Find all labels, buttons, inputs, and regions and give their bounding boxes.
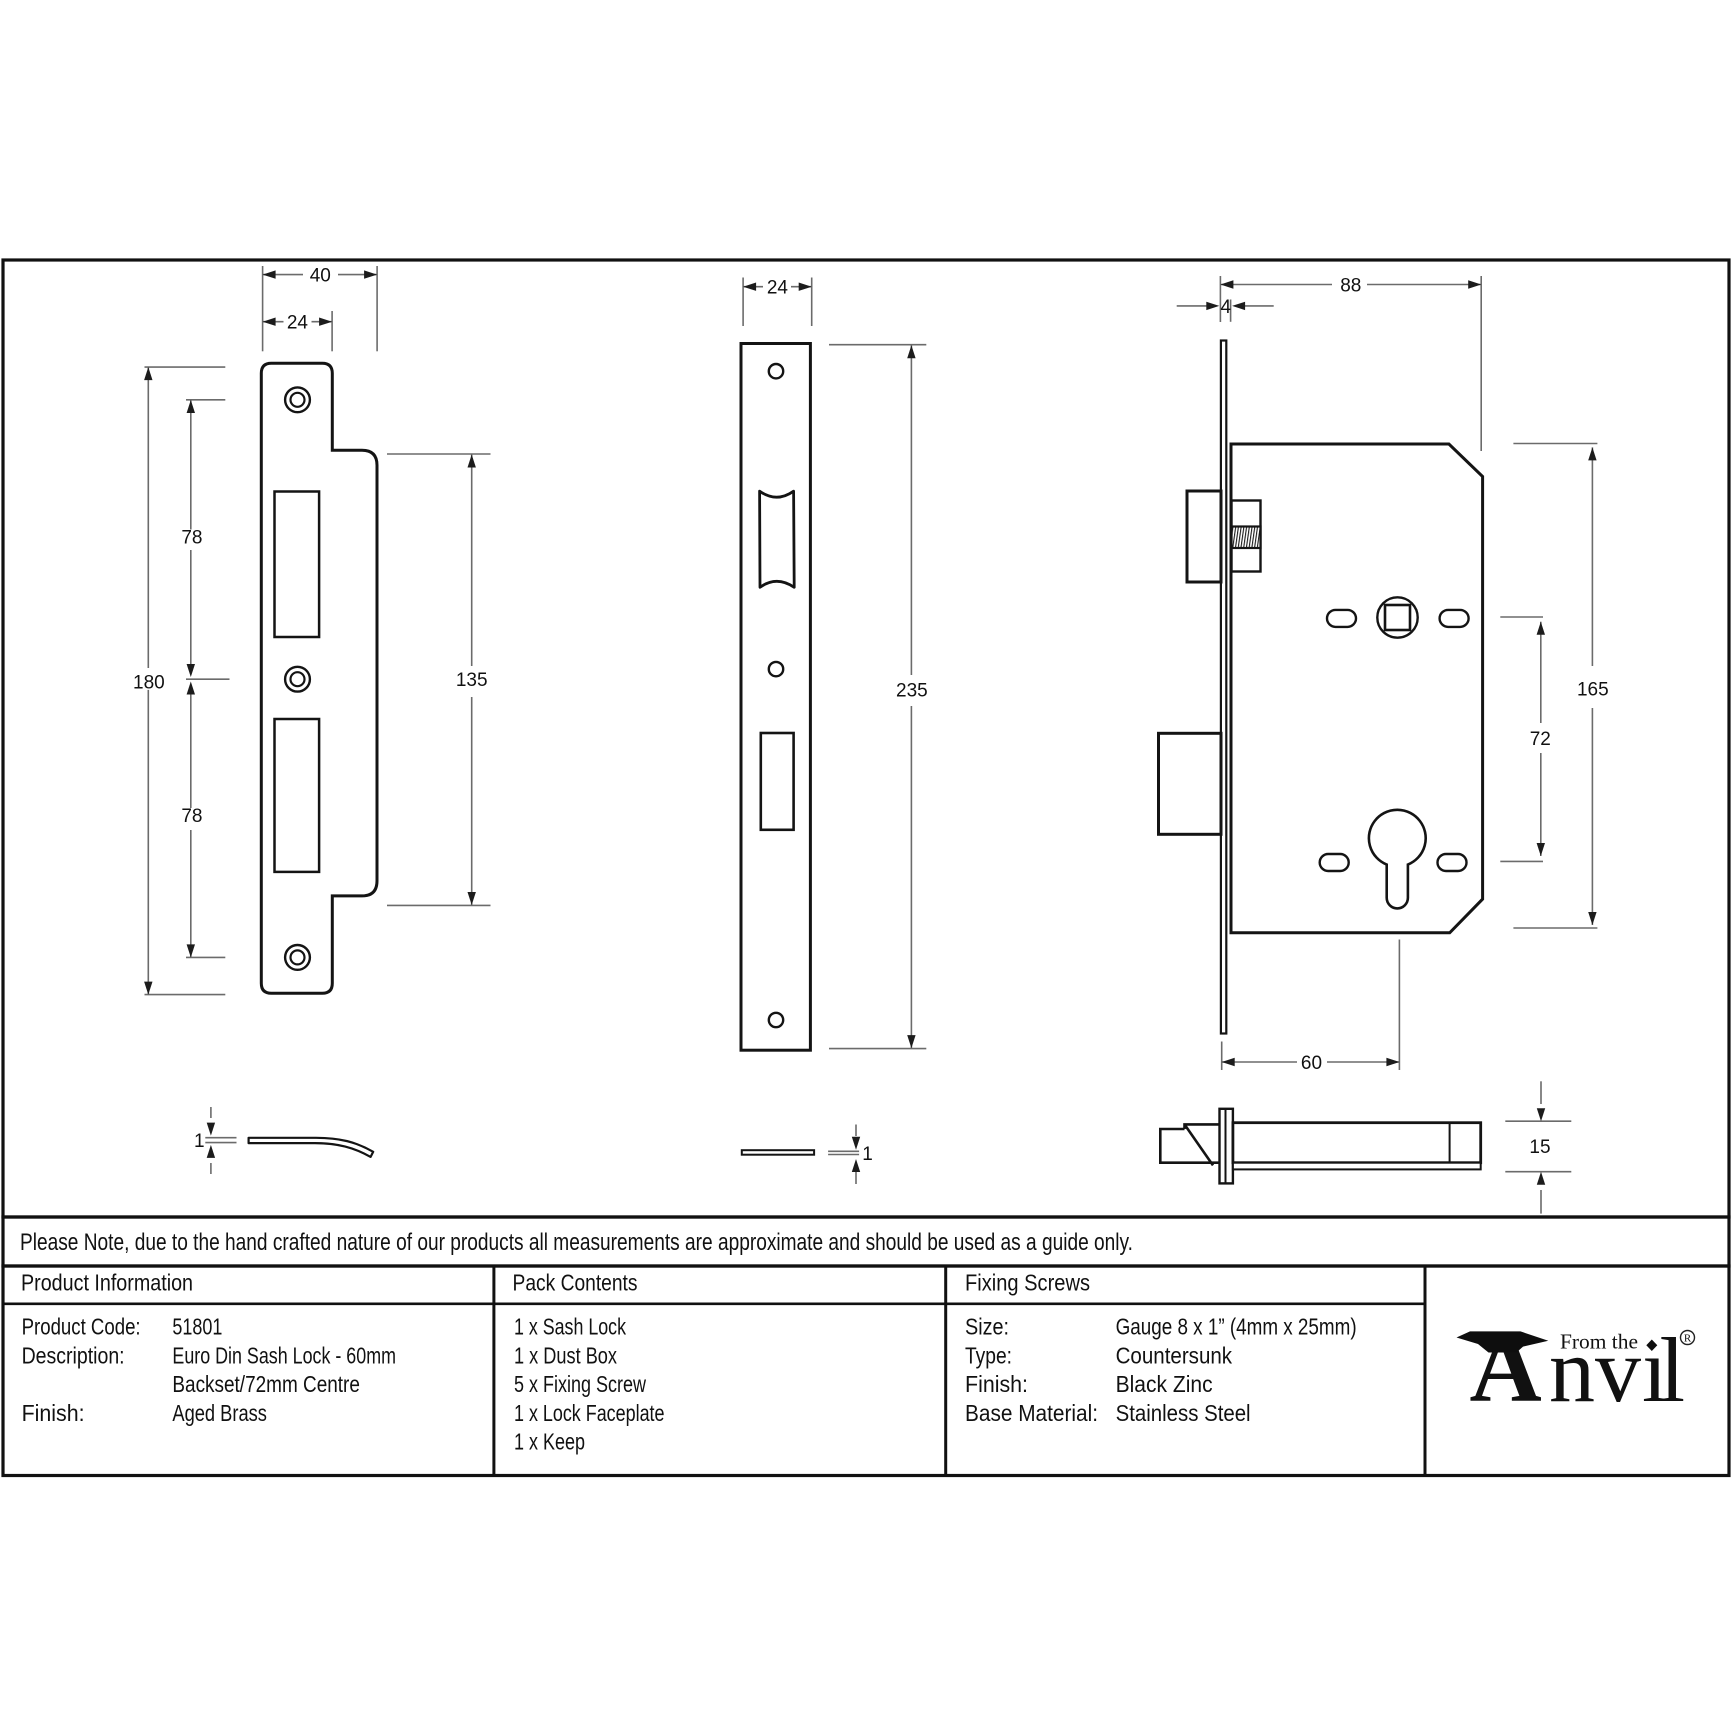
svg-text:Gauge 8 x 1” (4mm x 25mm): Gauge 8 x 1” (4mm x 25mm)	[1116, 1314, 1357, 1340]
svg-text:5 x Fixing Screw: 5 x Fixing Screw	[514, 1371, 646, 1397]
svg-text:72: 72	[1530, 729, 1551, 750]
svg-text:Black Zinc: Black Zinc	[1116, 1371, 1213, 1397]
svg-text:Product Information: Product Information	[21, 1269, 193, 1295]
svg-text:Description:: Description:	[22, 1342, 125, 1368]
svg-text:1 x Dust Box: 1 x Dust Box	[514, 1342, 617, 1368]
svg-text:Type:: Type:	[965, 1342, 1012, 1368]
svg-text:Product Code:: Product Code:	[22, 1314, 141, 1340]
svg-text:nv: nv	[1549, 1319, 1641, 1421]
svg-text:Euro Din Sash Lock - 60mm: Euro Din Sash Lock - 60mm	[172, 1342, 396, 1368]
svg-text:60: 60	[1301, 1053, 1322, 1074]
svg-text:Fixing Screws: Fixing Screws	[965, 1269, 1090, 1295]
svg-text:Stainless Steel: Stainless Steel	[1116, 1400, 1251, 1426]
svg-text:Backset/72mm Centre: Backset/72mm Centre	[172, 1371, 360, 1397]
svg-text:40: 40	[310, 266, 331, 287]
svg-text:Finish:: Finish:	[965, 1371, 1028, 1397]
svg-text:Size:: Size:	[965, 1314, 1009, 1340]
svg-text:4: 4	[1221, 297, 1232, 318]
svg-text:24: 24	[287, 313, 309, 334]
svg-text:135: 135	[456, 670, 488, 691]
svg-text:Finish:: Finish:	[22, 1400, 85, 1426]
svg-text:235: 235	[896, 681, 928, 702]
svg-text:165: 165	[1577, 679, 1609, 700]
svg-text:51801: 51801	[172, 1314, 222, 1340]
svg-text:78: 78	[181, 527, 202, 548]
svg-text:78: 78	[181, 806, 202, 827]
svg-text:15: 15	[1529, 1137, 1550, 1158]
svg-text:88: 88	[1340, 275, 1361, 296]
svg-text:1: 1	[194, 1131, 205, 1152]
svg-text:Aged Brass: Aged Brass	[172, 1400, 267, 1426]
svg-text:Countersunk: Countersunk	[1116, 1342, 1233, 1368]
svg-text:Pack Contents: Pack Contents	[513, 1269, 638, 1295]
svg-text:Base Material:: Base Material:	[965, 1400, 1098, 1426]
svg-text:1 x Keep: 1 x Keep	[514, 1429, 585, 1455]
svg-text:24: 24	[767, 278, 789, 299]
svg-text:1 x Lock Faceplate: 1 x Lock Faceplate	[514, 1400, 665, 1426]
svg-text:A: A	[1470, 1312, 1542, 1423]
svg-text:1: 1	[862, 1144, 873, 1165]
svg-text:1 x Sash Lock: 1 x Sash Lock	[514, 1314, 626, 1340]
svg-text:180: 180	[133, 673, 165, 694]
svg-text:Please Note, due to the hand c: Please Note, due to the hand crafted nat…	[20, 1229, 1133, 1256]
svg-text:R: R	[1684, 1333, 1692, 1345]
